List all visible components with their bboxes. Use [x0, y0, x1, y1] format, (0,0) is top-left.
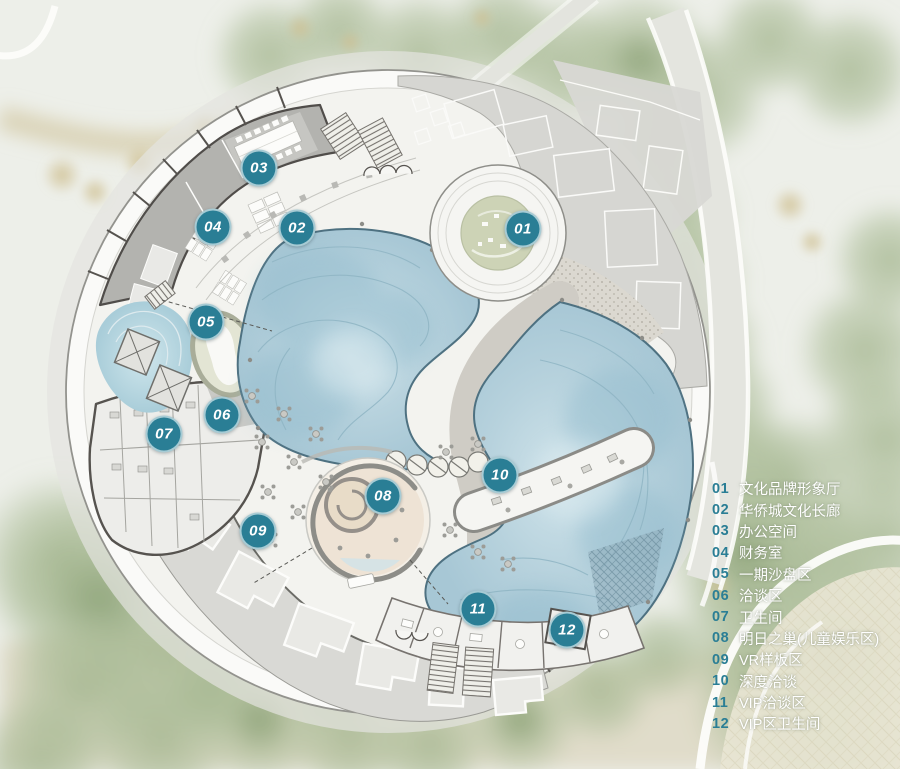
legend-item-02: 02华侨城文化长廊 — [712, 499, 879, 520]
legend-item-label: VR样板区 — [739, 649, 803, 670]
plan-marker-02: 02 — [279, 210, 316, 247]
legend-item-label: VIP区卫生间 — [739, 713, 820, 734]
plan-marker-03: 03 — [241, 150, 278, 187]
plan-marker-09: 09 — [240, 513, 277, 550]
legend-item-number: 11 — [712, 695, 739, 711]
legend-item-10: 10深度洽谈 — [712, 671, 879, 692]
plan-marker-07: 07 — [146, 416, 183, 453]
legend-item-label: 财务室 — [739, 542, 783, 563]
legend-item-number: 06 — [712, 588, 739, 604]
legend-item-label: 卫生间 — [739, 607, 783, 628]
legend-item-number: 05 — [712, 566, 739, 582]
legend-item-number: 09 — [712, 652, 739, 668]
legend-item-label: 办公空间 — [739, 521, 797, 542]
legend-item-11: 11VIP洽谈区 — [712, 692, 879, 713]
legend-item-label: VIP洽谈区 — [739, 692, 806, 713]
legend-item-label: 深度洽谈 — [739, 671, 797, 692]
legend-item-01: 01文化品牌形象厅 — [712, 478, 879, 499]
legend-item-number: 12 — [712, 716, 739, 732]
plan-marker-08: 08 — [365, 478, 402, 515]
brand-hall-ring — [430, 165, 566, 301]
legend-item-number: 02 — [712, 502, 739, 518]
legend-item-label: 洽谈区 — [739, 585, 783, 606]
legend-item-06: 06洽谈区 — [712, 585, 879, 606]
legend-item-label: 华侨城文化长廊 — [739, 500, 841, 521]
legend-item-number: 07 — [712, 609, 739, 625]
legend-item-05: 05一期沙盘区 — [712, 564, 879, 585]
legend-item-08: 08明日之巢(儿童娱乐区) — [712, 628, 879, 649]
legend-item-04: 04财务室 — [712, 542, 879, 563]
plan-marker-12: 12 — [549, 612, 586, 649]
legend-item-number: 03 — [712, 523, 739, 539]
legend-item-number: 08 — [712, 630, 739, 646]
legend-item-number: 01 — [712, 481, 739, 497]
plan-marker-04: 04 — [195, 209, 232, 246]
legend-item-07: 07卫生间 — [712, 606, 879, 627]
plan-marker-11: 11 — [460, 591, 497, 628]
legend-item-number: 04 — [712, 545, 739, 561]
legend-item-12: 12VIP区卫生间 — [712, 713, 879, 734]
plan-marker-01: 01 — [505, 211, 542, 248]
legend-item-label: 明日之巢(儿童娱乐区) — [739, 628, 879, 649]
plan-marker-06: 06 — [204, 397, 241, 434]
plan-marker-10: 10 — [482, 457, 519, 494]
plan-legend: 01文化品牌形象厅02华侨城文化长廊03办公空间04财务室05一期沙盘区06洽谈… — [712, 478, 879, 735]
legend-item-number: 10 — [712, 673, 739, 689]
legend-item-03: 03办公空间 — [712, 521, 879, 542]
plan-marker-05: 05 — [188, 304, 225, 341]
legend-item-label: 文化品牌形象厅 — [739, 478, 841, 499]
legend-item-label: 一期沙盘区 — [739, 564, 812, 585]
floor-plan-canvas: 010203040506070809101112 01文化品牌形象厅02华侨城文… — [0, 0, 900, 769]
legend-item-09: 09VR样板区 — [712, 649, 879, 670]
